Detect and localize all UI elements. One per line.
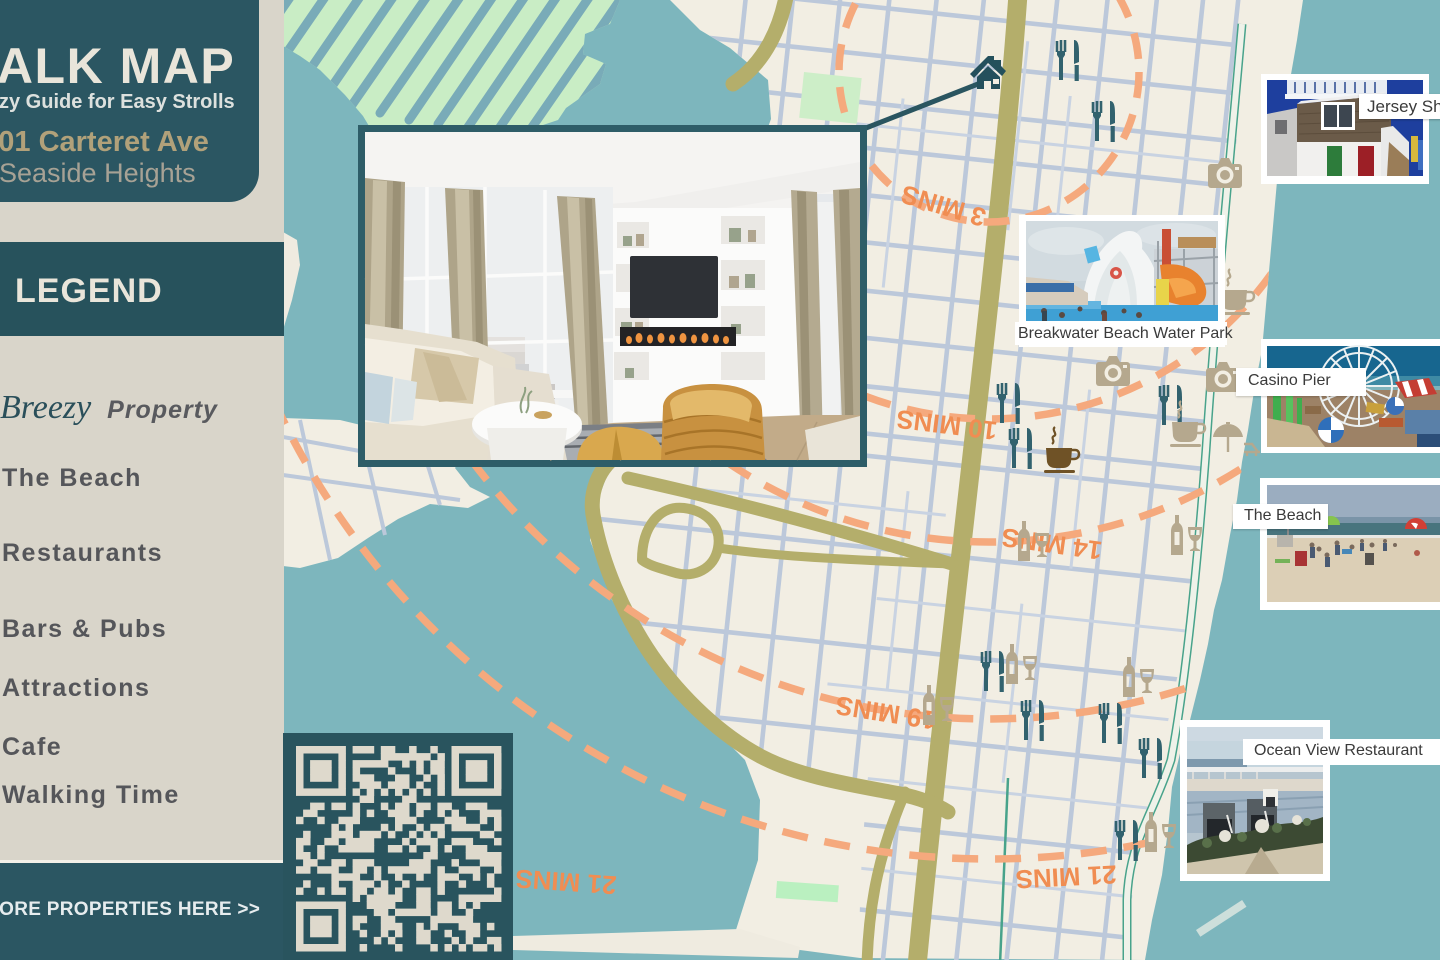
svg-text:21 MINS: 21 MINS [1015,859,1118,894]
